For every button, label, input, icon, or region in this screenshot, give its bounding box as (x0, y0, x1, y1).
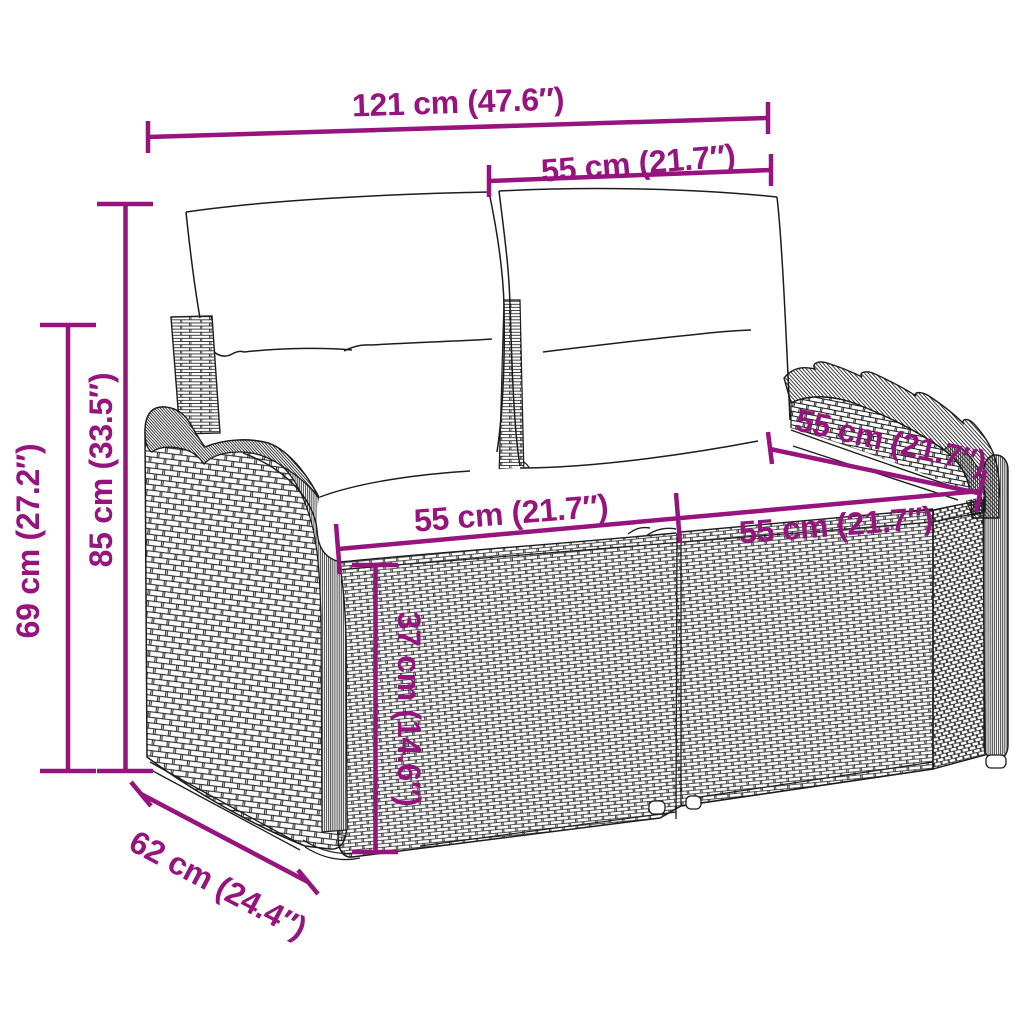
svg-text:69 cm (27.2″): 69 cm (27.2″) (10, 444, 46, 639)
svg-text:37 cm (14.6″): 37 cm (14.6″) (391, 612, 427, 807)
svg-text:121 cm (47.6″): 121 cm (47.6″) (351, 80, 564, 123)
svg-text:85 cm (33.5″): 85 cm (33.5″) (83, 373, 119, 568)
